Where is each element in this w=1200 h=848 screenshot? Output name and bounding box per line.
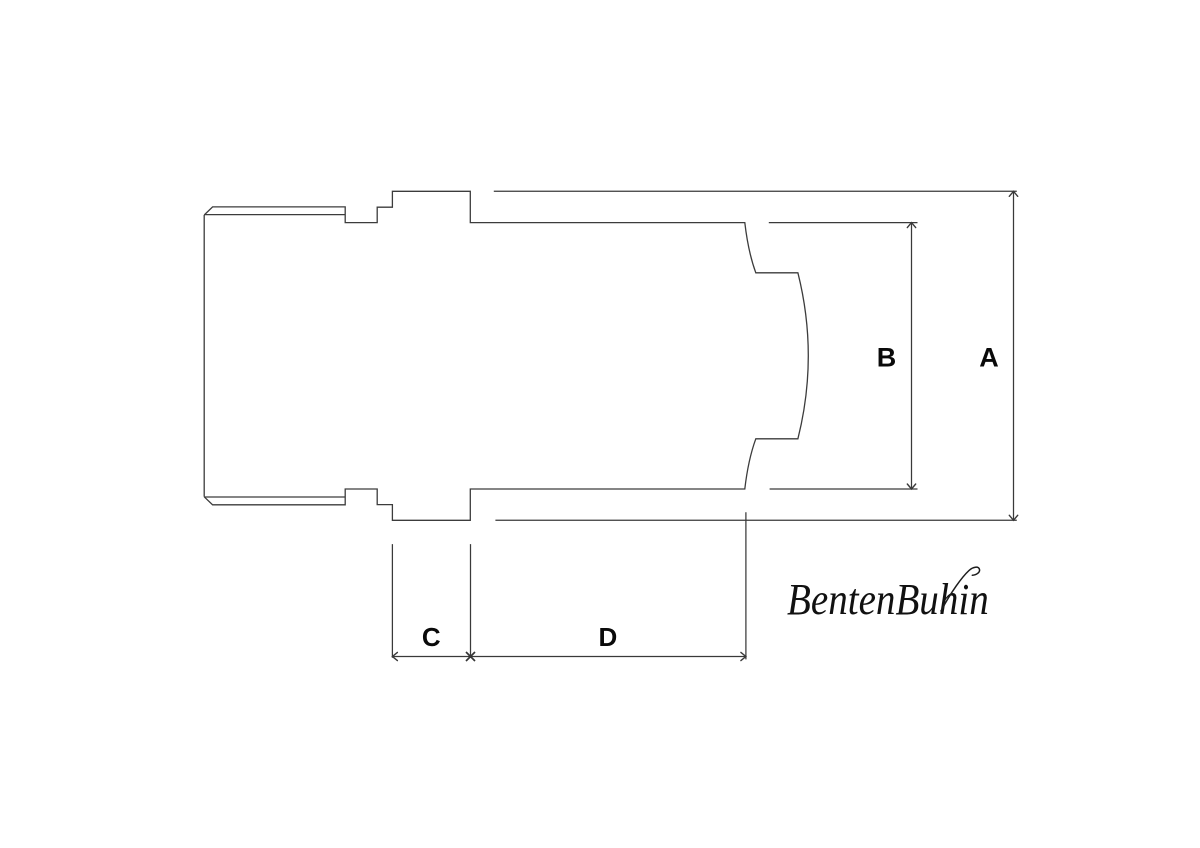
svg-text:B: B [877,343,897,373]
svg-text:D: D [599,622,618,652]
svg-text:C: C [422,622,441,652]
svg-text:A: A [979,343,999,373]
